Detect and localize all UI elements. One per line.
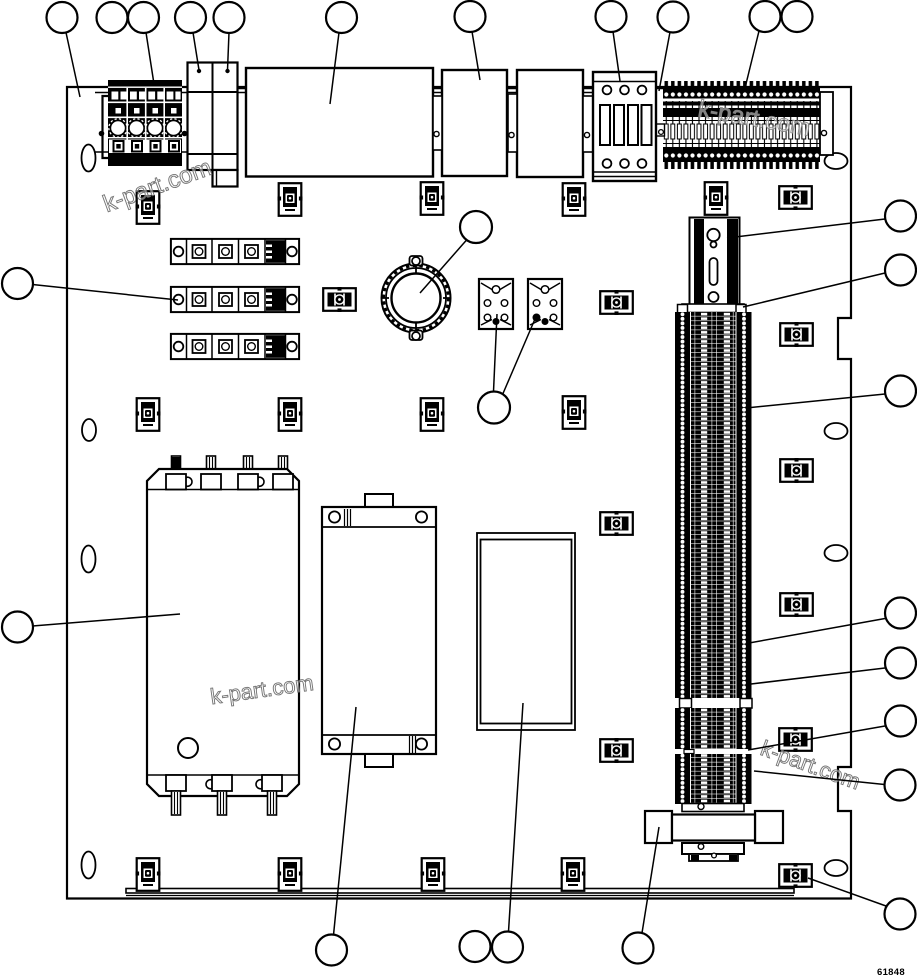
svg-text:61848: 61848 [877, 967, 905, 977]
